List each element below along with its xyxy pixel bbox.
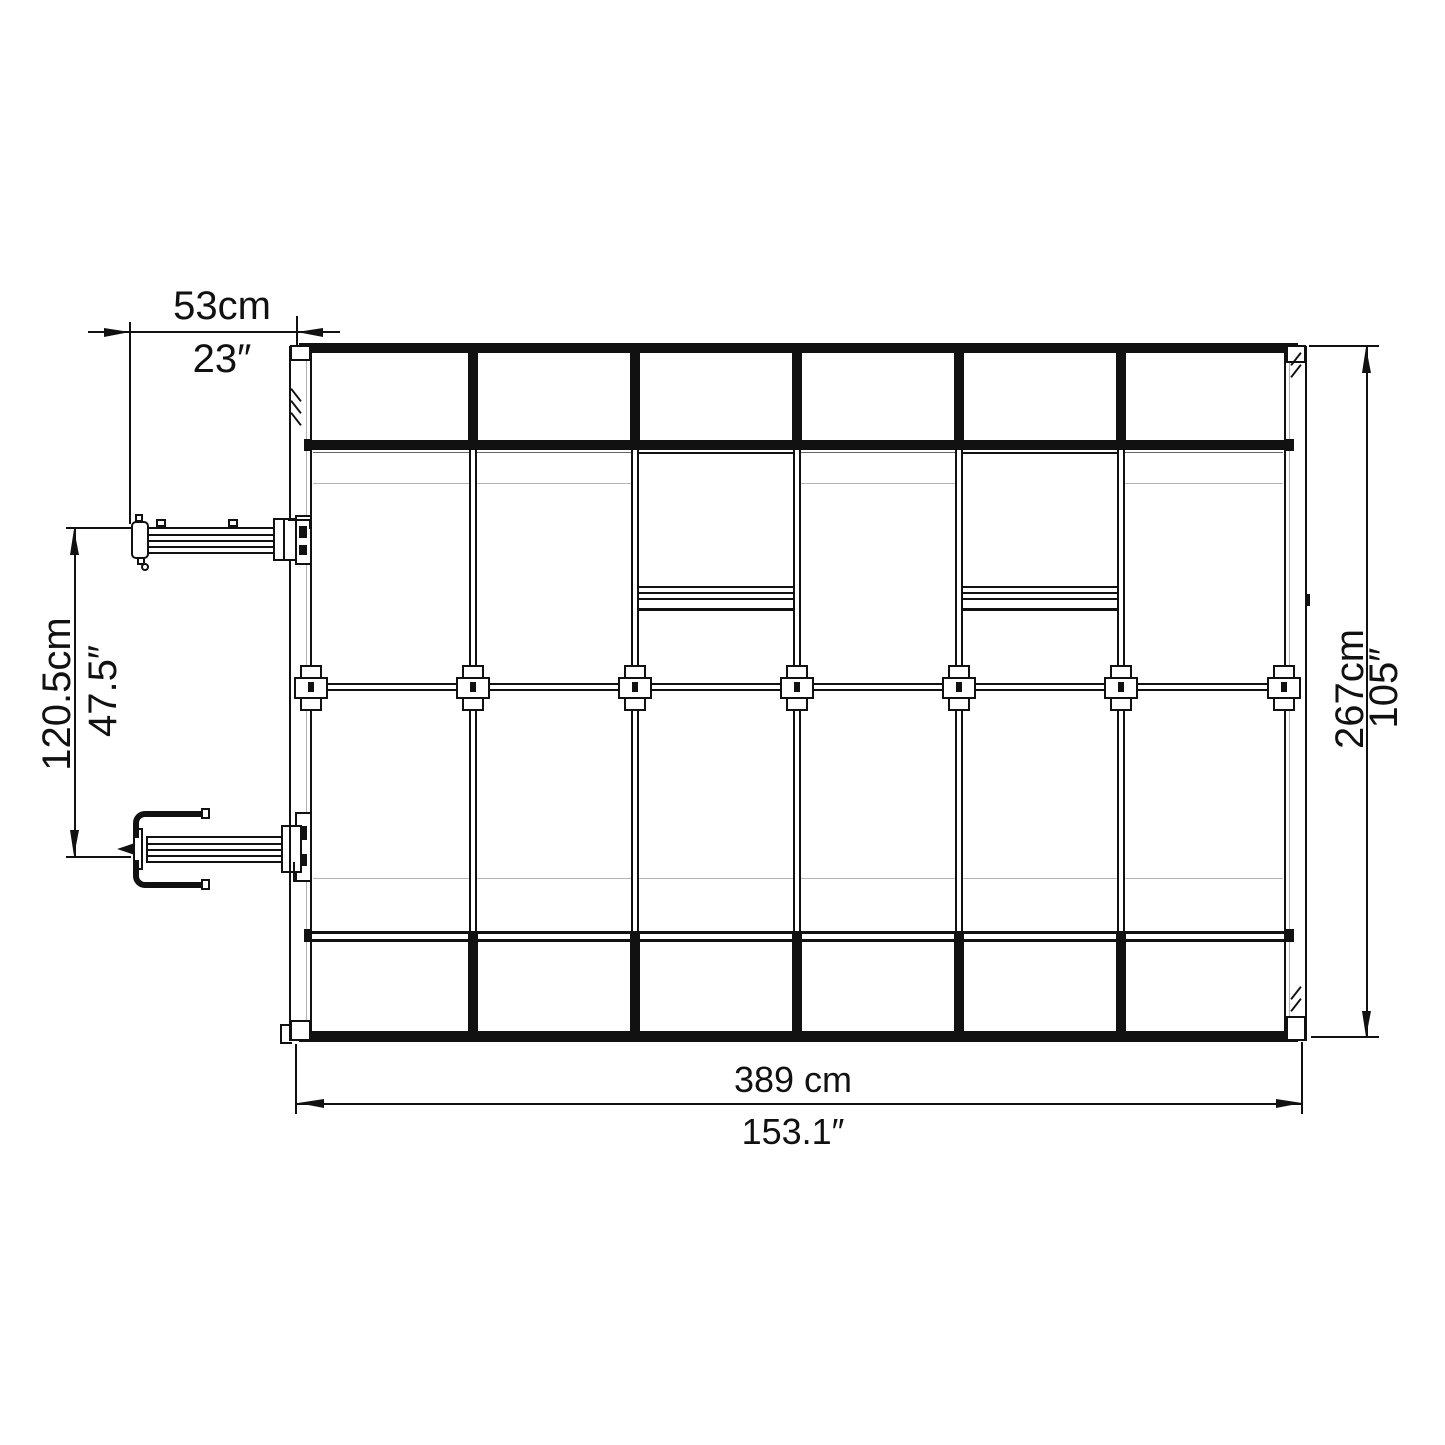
frame-rib-mid <box>631 450 639 686</box>
dim-top-arrow-left <box>104 328 130 337</box>
ridge-connector-pin <box>794 682 800 692</box>
hinge-plate-mark <box>299 545 307 555</box>
roof-vent-right-pane <box>961 452 1119 588</box>
frame-rib-top <box>954 344 964 450</box>
frame-rib-mid <box>631 691 639 931</box>
roof-vent-left-pane <box>637 452 795 588</box>
frame-rib-mid <box>469 691 477 931</box>
frame-rib-top <box>468 344 478 450</box>
wall-joint-mark <box>304 929 312 942</box>
dim-right-arrow-top <box>1362 347 1371 373</box>
opener-arm-top-link <box>288 519 311 521</box>
opener-arm-top-end-cap <box>131 521 149 559</box>
frame-rib-mid <box>1117 450 1125 686</box>
handle-arm-upper-hook-end <box>201 808 210 819</box>
dim-top-imperial: 23″ <box>122 338 322 380</box>
handle-arm-upper-hook <box>133 811 209 838</box>
left-wall-bottom-cap <box>290 1020 311 1041</box>
opener-arm-top-roller <box>141 563 149 571</box>
opener-arm-top-wall-cap-line <box>283 518 285 561</box>
frame-rib-mid <box>955 691 963 931</box>
opener-arm-top-tick <box>156 519 166 527</box>
ridge-connector-pin <box>632 682 638 692</box>
frame-rib-bottom <box>954 931 964 1041</box>
frame-rib-bottom <box>792 931 802 1041</box>
frame-rib-mid <box>469 450 477 686</box>
ridge-connector-pin <box>956 682 962 692</box>
dim-left-imperial: 47.5″ <box>82 541 124 841</box>
frame-rib-bottom <box>468 931 478 1041</box>
dim-left-metric: 120.5cm <box>36 544 78 844</box>
hinge-plate-mark <box>299 526 307 538</box>
frame-rib-bottom <box>630 931 640 1041</box>
handle-arm-link <box>293 880 312 882</box>
opener-arm-top-ridge-line <box>148 540 281 542</box>
frame-rib-top <box>630 344 640 450</box>
opener-arm-top-ridge-line <box>148 546 281 548</box>
frame-rib-mid <box>955 450 963 686</box>
greenhouse-top-view-drawing: 53cm 23″ 120.5cm 47.5″ 267cm 105″ 389 cm… <box>0 0 1445 1445</box>
ridge-connector-pin <box>1118 682 1124 692</box>
opener-arm-top-wall-cap <box>273 518 297 561</box>
handle-arm-link <box>293 862 295 882</box>
opener-arm-top-ridge-line <box>148 534 281 536</box>
dim-bottom-arrow-left <box>298 1099 324 1108</box>
ridge-connector-pin <box>308 682 314 692</box>
dim-bottom-arrow-right <box>1276 1099 1302 1108</box>
frame-rib-top <box>792 344 802 450</box>
ridge-connector-pin <box>470 682 476 692</box>
dim-bottom-imperial: 153.1″ <box>643 1112 943 1152</box>
wall-joint-mark <box>1286 929 1294 942</box>
wall-joint-mark <box>1286 439 1294 451</box>
right-wall-bottom-cap <box>1286 1016 1306 1041</box>
dim-bottom-line <box>296 1103 1303 1105</box>
ridge-connector-pin <box>1281 682 1287 692</box>
opener-arm-top-link <box>309 519 311 529</box>
wall-joint-mark <box>304 439 312 451</box>
dim-top-metric: 53cm <box>122 285 322 327</box>
dim-right-imperial: 105″ <box>1363 538 1405 838</box>
opener-arm-top-tick <box>228 519 238 527</box>
left-wall-foot-hook <box>280 1024 292 1044</box>
frame-rib-bottom <box>1116 931 1126 1041</box>
handle-arm-bottom-ridge-line <box>148 855 287 857</box>
dim-right-arrow-bottom <box>1362 1011 1371 1037</box>
frame-rib-mid <box>1117 691 1125 931</box>
handle-arm-lower-hook <box>133 860 209 888</box>
frame-rib-mid <box>793 450 801 686</box>
right-wall-latch-tick <box>1305 594 1310 606</box>
frame-rib-top <box>1116 344 1126 450</box>
handle-arm-wall-cap <box>281 825 302 873</box>
handle-arm-wall-cap-line <box>289 825 291 873</box>
opener-arm-top-knob <box>135 514 143 522</box>
handle-arm-bottom-ridge-line <box>148 849 287 851</box>
frame-rib-mid <box>793 691 801 931</box>
dim-top-arrow-right <box>297 328 323 337</box>
roof-vent-right-sill <box>955 598 1125 611</box>
dim-bottom-metric: 389 cm <box>643 1060 943 1100</box>
roof-vent-left-sill <box>631 598 801 611</box>
handle-arm-lower-hook-end <box>201 879 210 890</box>
handle-arm-bottom-ridge-line <box>148 843 287 845</box>
